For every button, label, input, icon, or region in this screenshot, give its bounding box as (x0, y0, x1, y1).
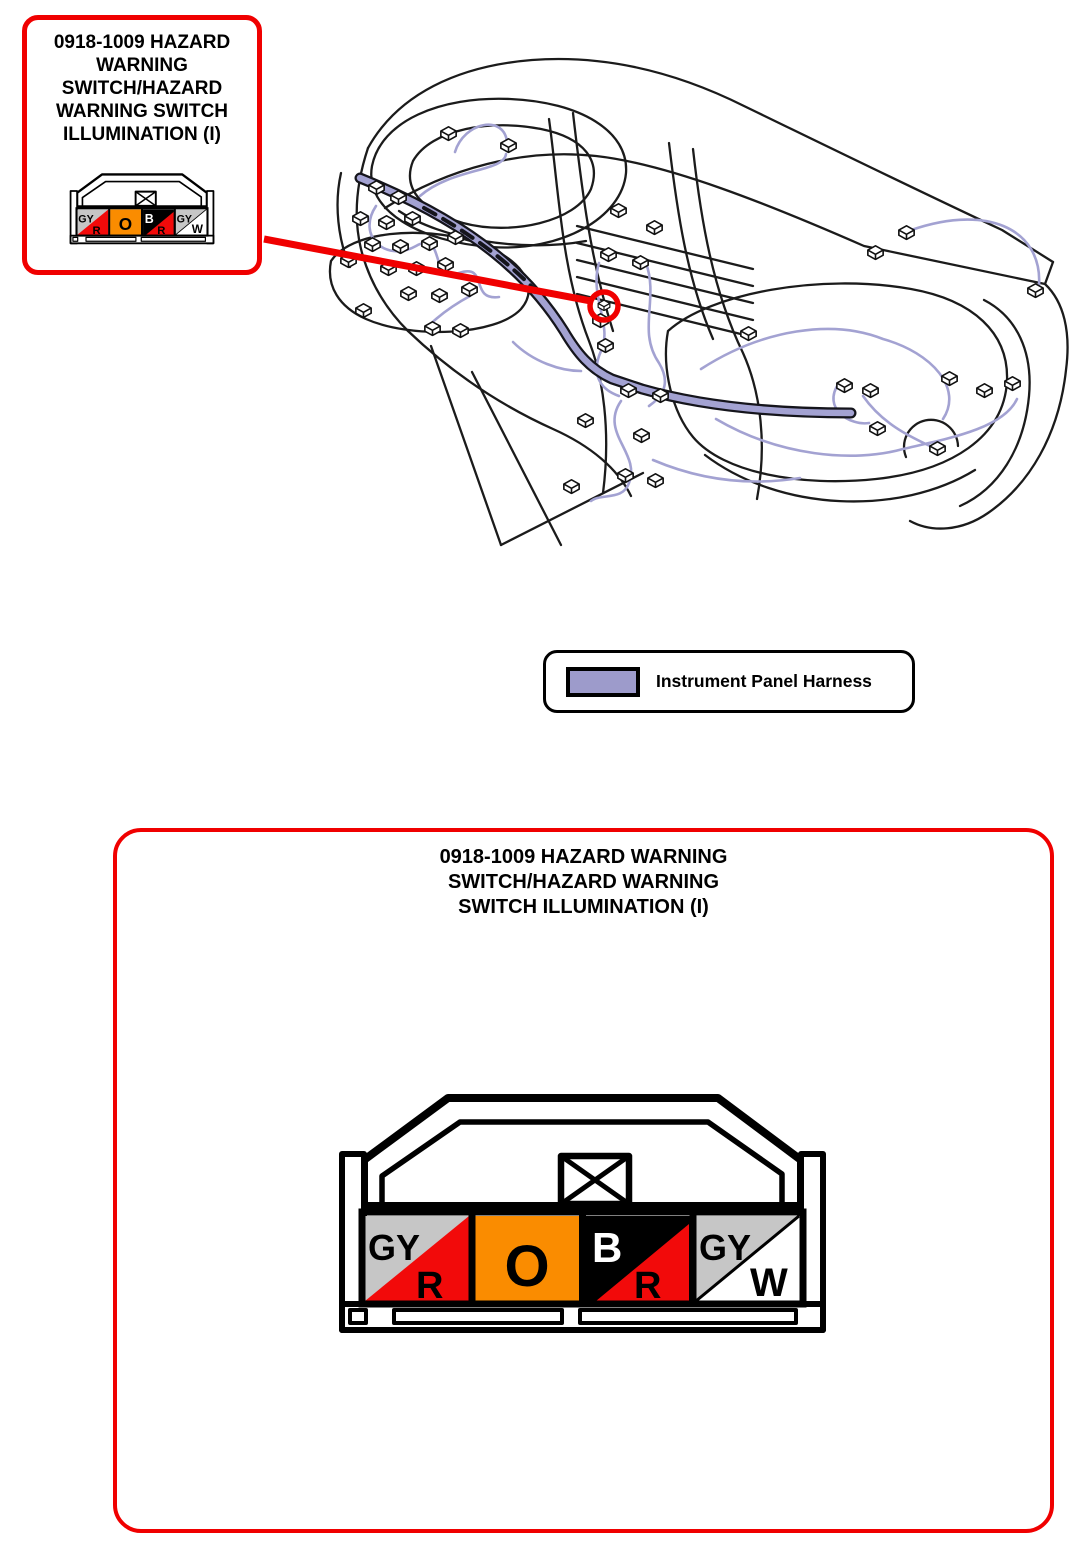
connector-detail-panel: 0918-1009 HAZARD WARNING SWITCH/HAZARD W… (113, 828, 1054, 1533)
connector-diagram-large (330, 1090, 835, 1340)
callout-title: 0918-1009 HAZARD WARNING SWITCH/HAZARD W… (27, 31, 257, 146)
connector-callout-box: 0918-1009 HAZARD WARNING SWITCH/HAZARD W… (22, 15, 262, 275)
harness-legend: Instrument Panel Harness (543, 650, 915, 713)
connector-diagram-small (67, 172, 217, 246)
service-manual-page: { "callout": { "title": "0918-1009 HAZAR… (0, 0, 1078, 1548)
detail-panel-title: 0918-1009 HAZARD WARNING SWITCH/HAZARD W… (117, 845, 1050, 920)
harness-legend-label: Instrument Panel Harness (656, 671, 872, 692)
harness-color-swatch (566, 667, 640, 697)
